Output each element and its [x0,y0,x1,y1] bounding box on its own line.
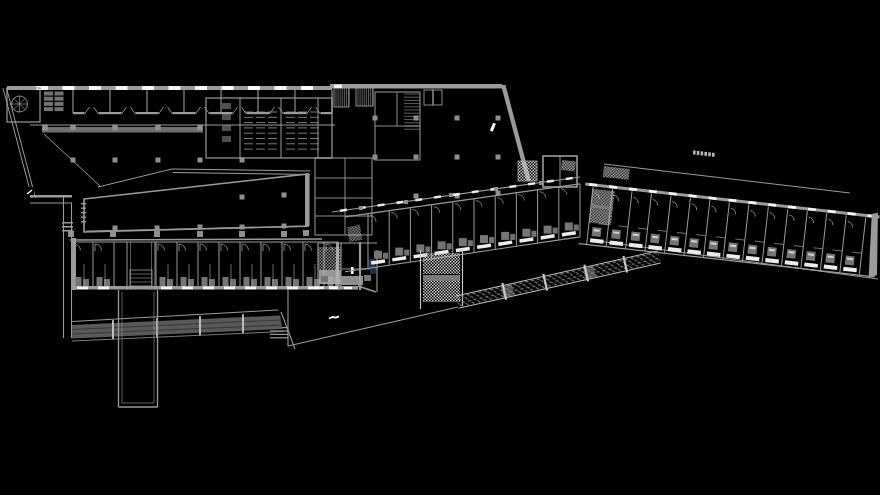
bath-fixture [202,277,208,286]
door-swing [370,216,376,222]
bath-fixture [97,277,103,286]
toilet-service-block [206,98,332,158]
ramp-wedges-hall [42,125,310,232]
column [494,187,498,191]
door-swing [200,244,207,251]
column [240,195,245,200]
double-door-swing [122,107,136,114]
bath-fixture [76,277,82,286]
bath-fixture [747,245,757,255]
stair-hatch-small [347,225,362,242]
spiral-stair-icon [12,96,28,112]
window [266,287,277,290]
window [169,86,181,90]
door-swing [305,244,312,251]
column [240,225,245,230]
bath-fixture [160,277,166,286]
balcony-slab [824,265,838,270]
column [281,231,287,237]
column [154,231,160,237]
balcony-slab [590,238,604,243]
wing-end-wall [865,212,880,279]
column [414,194,419,199]
window [203,287,214,290]
stair-blocks-top [334,85,442,160]
window [98,287,109,290]
bath-fixture [501,232,509,240]
ramp-deck [72,316,283,339]
door-swing [652,200,658,206]
bath-fixture [480,235,488,243]
door-swing [455,204,461,210]
door-swing [789,215,795,221]
balcony-slab [804,262,818,267]
balcony-slab [687,249,701,254]
column [282,193,287,198]
bath-fixture [611,229,621,239]
window [182,287,193,290]
door-swing [711,206,717,212]
balcony-slab [843,267,857,272]
door-swing [391,213,397,219]
bath-fixture [728,242,738,252]
locker-grid [44,92,64,112]
balcony-slab [746,256,760,261]
window [275,86,287,90]
bath-fixture [374,251,382,259]
room-stack [315,158,372,235]
bath-fixture [244,277,250,286]
bath-fixture [669,236,679,246]
door-swing [497,198,503,204]
tiled-room [318,247,341,270]
column [414,116,419,121]
white-site-mark [329,316,339,318]
column [373,116,378,121]
bath-fixture [395,248,403,256]
elevator-box [424,90,433,105]
window [63,86,75,90]
door-swing [284,244,291,251]
bath-fixture [689,238,699,248]
column [414,155,419,160]
balcony-slab [392,256,406,262]
bath-fixture [223,277,229,286]
double-door-swing [159,107,173,114]
column [496,116,501,121]
balcony-slab [629,243,643,248]
door-swing [95,244,102,251]
elevator-box [433,90,442,105]
column [197,125,203,131]
column [70,125,76,131]
column [110,231,116,237]
white-figure-mark [490,123,496,132]
balcony-slab [562,231,576,237]
window [222,86,234,90]
door-swing [242,244,249,251]
column [303,230,309,236]
door-swing [769,213,775,219]
balcony-slab [540,234,554,240]
bath-fixture [708,240,718,250]
external-walkway [455,248,661,310]
window [248,86,260,90]
column [496,155,501,160]
balcony-slab [765,258,779,263]
balcony-slab [498,240,512,246]
window [301,86,313,90]
door-swing [827,219,833,225]
bath-fixture [650,234,660,244]
balcony-slab [609,241,623,246]
bath-fixture [544,226,552,234]
window [77,287,88,290]
balcony-slab [519,237,533,243]
window [142,86,154,90]
left-room-wing [72,238,358,290]
window [195,86,207,90]
double-door-swing [196,107,210,114]
column [373,155,378,160]
floor-plan-canvas [0,0,880,495]
site-boundary-lines [3,88,878,346]
door-swing [434,207,440,213]
bath-fixture [806,251,816,261]
upper-ramp-bar [42,127,203,133]
balcony-slab [648,245,662,250]
balcony-slab [785,260,799,265]
door-swing [540,192,546,198]
door-swing [672,202,678,208]
balcony-slab [668,247,682,252]
bath-fixture [438,241,446,249]
column [113,158,118,163]
column [455,155,460,160]
bath-fixture [181,277,187,286]
door-swing [691,204,697,210]
balcony-slab [477,244,491,250]
top-left-wing [7,86,335,125]
door-swing [518,195,524,201]
door-swing [808,217,814,223]
column [404,200,408,204]
central-stair [421,249,463,309]
bath-fixture [786,249,796,259]
bath-fixture [565,222,573,230]
column [239,231,245,237]
bath-fixture [592,227,602,237]
door-swing [221,244,228,251]
west-connector [30,195,73,338]
classroom-row [73,90,332,114]
window [161,287,172,290]
washbasins [222,103,231,142]
column [282,224,287,229]
column [155,125,161,131]
bath-fixture [307,277,313,286]
column [197,231,203,237]
bath-fixture [825,253,835,263]
hall-north-wall [330,84,502,89]
column [359,206,363,210]
door-swing [179,244,186,251]
bath-fixture [459,238,467,246]
door-swing [476,201,482,207]
window [89,86,101,90]
southwest-ramp [72,310,295,349]
column [112,125,118,131]
column [455,116,460,121]
door-swing [633,197,639,203]
bath-fixture [845,255,855,265]
bath-fixture [522,229,530,237]
hall-columns [373,116,501,199]
door-swing [263,244,270,251]
south-pier-bridge [119,290,158,407]
door-swing [750,211,756,217]
double-door-swing [85,107,99,114]
column [198,158,203,163]
door-swing [412,210,418,216]
door-swing [730,208,736,214]
wedge-columns [71,158,287,231]
bath-fixture [767,247,777,257]
window [224,287,235,290]
floor-plan-drawing [0,0,880,495]
bridge-lobby [127,242,155,290]
bath-fixture [265,277,271,286]
column [240,158,245,163]
window [245,287,256,290]
door-swing [847,221,853,227]
south-boundary-line [288,307,458,346]
window [116,86,128,90]
door-swing [561,189,567,195]
window [287,287,298,290]
bath-fixture [631,231,641,241]
door-swing [158,244,165,251]
column [71,158,76,163]
column [449,193,453,197]
column [156,158,161,163]
bath-fixture [286,277,292,286]
column [113,226,118,231]
column [42,125,48,131]
